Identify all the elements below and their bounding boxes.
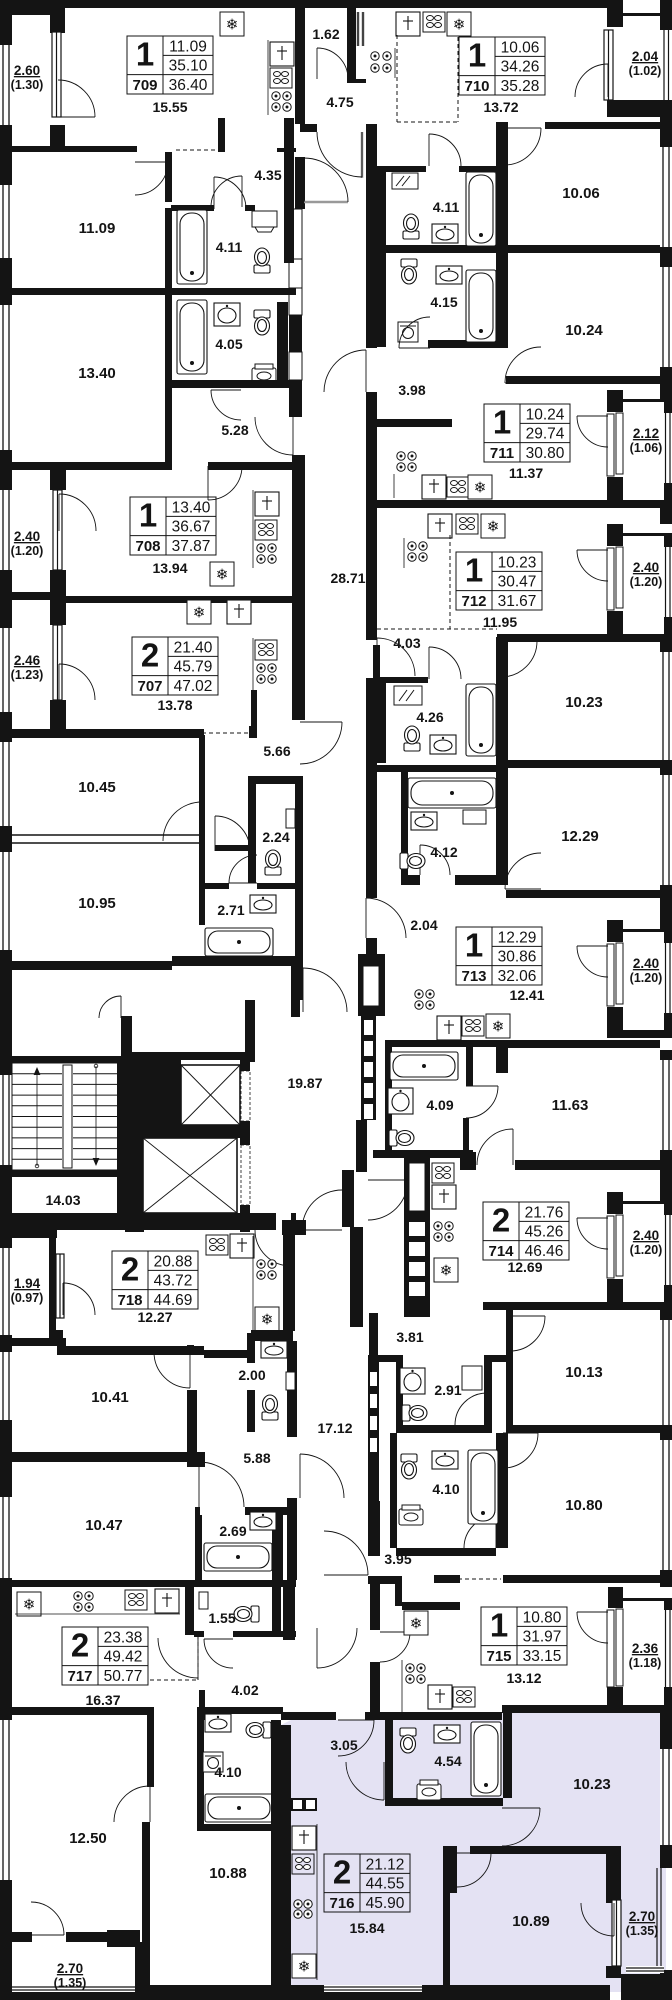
svg-text:10.24: 10.24 xyxy=(565,322,603,339)
svg-text:33.15: 33.15 xyxy=(523,1648,562,1665)
svg-text:❄: ❄ xyxy=(261,1312,274,1329)
svg-text:13.78: 13.78 xyxy=(157,697,192,713)
svg-text:2.70: 2.70 xyxy=(57,1961,83,1976)
svg-text:49.42: 49.42 xyxy=(104,1649,143,1666)
svg-text:❄: ❄ xyxy=(216,567,229,584)
svg-text:3.98: 3.98 xyxy=(398,382,425,398)
svg-text:2.40: 2.40 xyxy=(633,1228,659,1243)
svg-text:16.37: 16.37 xyxy=(85,1692,120,1708)
svg-text:10.23: 10.23 xyxy=(565,694,603,711)
svg-text:11.95: 11.95 xyxy=(483,614,517,630)
svg-text:23.38: 23.38 xyxy=(104,1629,143,1646)
svg-text:44.55: 44.55 xyxy=(366,1876,405,1893)
svg-text:43.72: 43.72 xyxy=(154,1273,193,1290)
svg-text:46.46: 46.46 xyxy=(525,1243,564,1260)
svg-text:10.41: 10.41 xyxy=(91,1389,129,1406)
svg-text:10.13: 10.13 xyxy=(565,1364,603,1381)
svg-text:35.28: 35.28 xyxy=(501,78,540,95)
svg-text:44.69: 44.69 xyxy=(154,1292,193,1309)
svg-text:4.10: 4.10 xyxy=(432,1481,459,1497)
svg-text:30.47: 30.47 xyxy=(498,574,537,591)
svg-text:45.26: 45.26 xyxy=(525,1224,564,1241)
svg-text:4.03: 4.03 xyxy=(393,635,420,651)
svg-text:(1.18): (1.18) xyxy=(629,1656,662,1670)
svg-text:2.70: 2.70 xyxy=(629,1909,655,1924)
svg-text:4.75: 4.75 xyxy=(326,94,353,110)
svg-text:3.81: 3.81 xyxy=(396,1329,423,1345)
svg-text:1: 1 xyxy=(468,37,486,74)
svg-text:11.09: 11.09 xyxy=(169,38,207,55)
svg-text:2: 2 xyxy=(333,1854,351,1891)
svg-text:10.06: 10.06 xyxy=(562,185,600,202)
svg-text:13.40: 13.40 xyxy=(172,499,211,516)
svg-text:(1.02): (1.02) xyxy=(629,64,662,78)
svg-text:2.91: 2.91 xyxy=(434,1382,461,1398)
svg-text:10.47: 10.47 xyxy=(85,1517,123,1534)
svg-text:47.02: 47.02 xyxy=(174,678,213,695)
svg-text:1: 1 xyxy=(465,927,483,964)
svg-text:3.05: 3.05 xyxy=(330,1737,357,1753)
svg-text:2.04: 2.04 xyxy=(410,917,437,933)
svg-text:15.84: 15.84 xyxy=(349,1920,384,1936)
svg-text:15.55: 15.55 xyxy=(152,99,187,115)
svg-text:36.67: 36.67 xyxy=(172,519,211,536)
svg-text:2.46: 2.46 xyxy=(14,653,41,668)
svg-text:(1.20): (1.20) xyxy=(11,544,44,558)
svg-text:(1.23): (1.23) xyxy=(11,668,44,682)
svg-text:4.05: 4.05 xyxy=(215,336,242,352)
svg-text:3.95: 3.95 xyxy=(384,1551,411,1567)
svg-text:4.35: 4.35 xyxy=(254,167,281,183)
svg-text:4.26: 4.26 xyxy=(416,709,443,725)
svg-text:28.71: 28.71 xyxy=(330,570,365,586)
svg-text:❄: ❄ xyxy=(226,17,239,34)
svg-text:1: 1 xyxy=(465,552,483,589)
svg-text:2: 2 xyxy=(121,1251,139,1288)
svg-text:1.94: 1.94 xyxy=(14,1276,41,1291)
svg-text:21.40: 21.40 xyxy=(174,639,213,656)
svg-text:30.86: 30.86 xyxy=(498,949,537,966)
svg-text:2.71: 2.71 xyxy=(217,902,244,918)
svg-text:❄: ❄ xyxy=(453,17,466,34)
svg-text:4.02: 4.02 xyxy=(231,1682,258,1698)
svg-text:4.54: 4.54 xyxy=(434,1753,461,1769)
svg-text:30.80: 30.80 xyxy=(526,445,565,462)
svg-text:1: 1 xyxy=(493,404,511,441)
svg-text:10.88: 10.88 xyxy=(209,1865,247,1882)
svg-text:13.40: 13.40 xyxy=(78,365,116,382)
svg-text:2.24: 2.24 xyxy=(262,829,289,845)
svg-text:709: 709 xyxy=(132,77,157,94)
svg-text:13.12: 13.12 xyxy=(506,1670,541,1686)
svg-text:20.88: 20.88 xyxy=(154,1253,193,1270)
svg-text:31.67: 31.67 xyxy=(498,593,537,610)
svg-text:(1.35): (1.35) xyxy=(626,1924,659,1938)
svg-text:(0.97): (0.97) xyxy=(11,1291,44,1305)
svg-text:10.89: 10.89 xyxy=(512,1913,550,1930)
svg-text:2.69: 2.69 xyxy=(219,1523,246,1539)
svg-text:2.60: 2.60 xyxy=(14,63,40,78)
svg-text:(1.20): (1.20) xyxy=(630,575,663,589)
svg-text:10.06: 10.06 xyxy=(501,39,540,56)
svg-text:10.80: 10.80 xyxy=(523,1609,562,1626)
svg-text:14.03: 14.03 xyxy=(45,1192,80,1208)
svg-text:2.00: 2.00 xyxy=(238,1367,265,1383)
svg-text:12.50: 12.50 xyxy=(69,1830,107,1847)
svg-text:1: 1 xyxy=(136,36,154,73)
svg-text:12.41: 12.41 xyxy=(509,987,544,1003)
svg-text:10.23: 10.23 xyxy=(573,1776,611,1793)
svg-text:❄: ❄ xyxy=(410,1616,423,1633)
svg-text:707: 707 xyxy=(137,678,162,695)
svg-text:10.45: 10.45 xyxy=(78,779,116,796)
svg-text:❄: ❄ xyxy=(23,1597,36,1614)
svg-text:❄: ❄ xyxy=(492,1019,505,1036)
svg-text:718: 718 xyxy=(117,1292,142,1309)
svg-text:10.80: 10.80 xyxy=(565,1497,603,1514)
svg-text:19.87: 19.87 xyxy=(287,1075,322,1091)
svg-text:17.12: 17.12 xyxy=(317,1420,352,1436)
svg-text:12.27: 12.27 xyxy=(137,1309,172,1325)
svg-text:5.66: 5.66 xyxy=(263,743,290,759)
svg-text:12.29: 12.29 xyxy=(561,828,599,845)
svg-text:4.11: 4.11 xyxy=(433,199,460,215)
svg-text:❄: ❄ xyxy=(298,1959,311,1976)
svg-text:13.72: 13.72 xyxy=(483,99,518,115)
svg-text:712: 712 xyxy=(461,593,486,610)
svg-text:45.79: 45.79 xyxy=(174,659,213,676)
svg-text:32.06: 32.06 xyxy=(498,968,537,985)
svg-text:36.40: 36.40 xyxy=(169,77,208,94)
svg-text:11.63: 11.63 xyxy=(552,1097,589,1114)
svg-text:716: 716 xyxy=(329,1895,354,1912)
svg-text:2.40: 2.40 xyxy=(14,529,40,544)
svg-text:50.77: 50.77 xyxy=(104,1668,143,1685)
svg-text:1.55: 1.55 xyxy=(208,1610,235,1626)
svg-text:37.87: 37.87 xyxy=(172,538,211,555)
svg-text:1: 1 xyxy=(139,497,157,534)
svg-text:713: 713 xyxy=(461,968,486,985)
svg-text:❄: ❄ xyxy=(474,480,487,497)
svg-text:31.97: 31.97 xyxy=(523,1629,562,1646)
svg-text:10.24: 10.24 xyxy=(526,406,565,423)
svg-text:5.88: 5.88 xyxy=(243,1450,270,1466)
svg-text:714: 714 xyxy=(488,1243,514,1260)
svg-text:4.12: 4.12 xyxy=(430,844,457,860)
svg-text:10.23: 10.23 xyxy=(498,554,537,571)
svg-text:(1.30): (1.30) xyxy=(11,78,44,92)
svg-text:21.12: 21.12 xyxy=(366,1856,405,1873)
svg-text:1: 1 xyxy=(490,1607,508,1644)
svg-text:(1.20): (1.20) xyxy=(630,971,663,985)
svg-text:2: 2 xyxy=(71,1627,89,1664)
svg-text:(1.35): (1.35) xyxy=(54,1976,87,1990)
svg-text:(1.20): (1.20) xyxy=(630,1243,663,1257)
svg-text:2.40: 2.40 xyxy=(633,956,659,971)
svg-text:21.76: 21.76 xyxy=(525,1204,564,1221)
svg-text:2.12: 2.12 xyxy=(633,426,659,441)
svg-text:2.36: 2.36 xyxy=(632,1641,659,1656)
svg-text:(1.06): (1.06) xyxy=(630,441,663,455)
svg-text:1.62: 1.62 xyxy=(312,26,339,42)
svg-text:❄: ❄ xyxy=(440,1263,453,1280)
svg-text:10.95: 10.95 xyxy=(78,895,116,912)
svg-text:13.94: 13.94 xyxy=(152,560,187,576)
svg-text:12.69: 12.69 xyxy=(507,1259,542,1275)
svg-text:4.10: 4.10 xyxy=(214,1764,241,1780)
svg-text:35.10: 35.10 xyxy=(169,58,208,75)
svg-text:4.11: 4.11 xyxy=(216,239,243,255)
svg-text:2.04: 2.04 xyxy=(632,49,659,64)
svg-text:708: 708 xyxy=(135,538,160,555)
svg-text:❄: ❄ xyxy=(487,519,500,536)
svg-text:2.40: 2.40 xyxy=(633,560,659,575)
svg-text:4.15: 4.15 xyxy=(430,294,457,310)
svg-text:715: 715 xyxy=(486,1648,511,1665)
svg-text:29.74: 29.74 xyxy=(526,426,565,443)
svg-text:4.09: 4.09 xyxy=(426,1097,453,1113)
svg-text:45.90: 45.90 xyxy=(366,1895,405,1912)
svg-text:5.28: 5.28 xyxy=(221,422,248,438)
svg-text:710: 710 xyxy=(464,78,489,95)
svg-text:34.26: 34.26 xyxy=(501,59,540,76)
svg-text:711: 711 xyxy=(490,445,514,462)
svg-text:❄: ❄ xyxy=(193,605,206,622)
svg-text:12.29: 12.29 xyxy=(498,929,537,946)
svg-text:11.37: 11.37 xyxy=(509,465,543,481)
svg-text:717: 717 xyxy=(67,1668,92,1685)
svg-text:11.09: 11.09 xyxy=(79,220,116,237)
svg-text:2: 2 xyxy=(141,637,159,674)
svg-text:2: 2 xyxy=(492,1202,510,1239)
